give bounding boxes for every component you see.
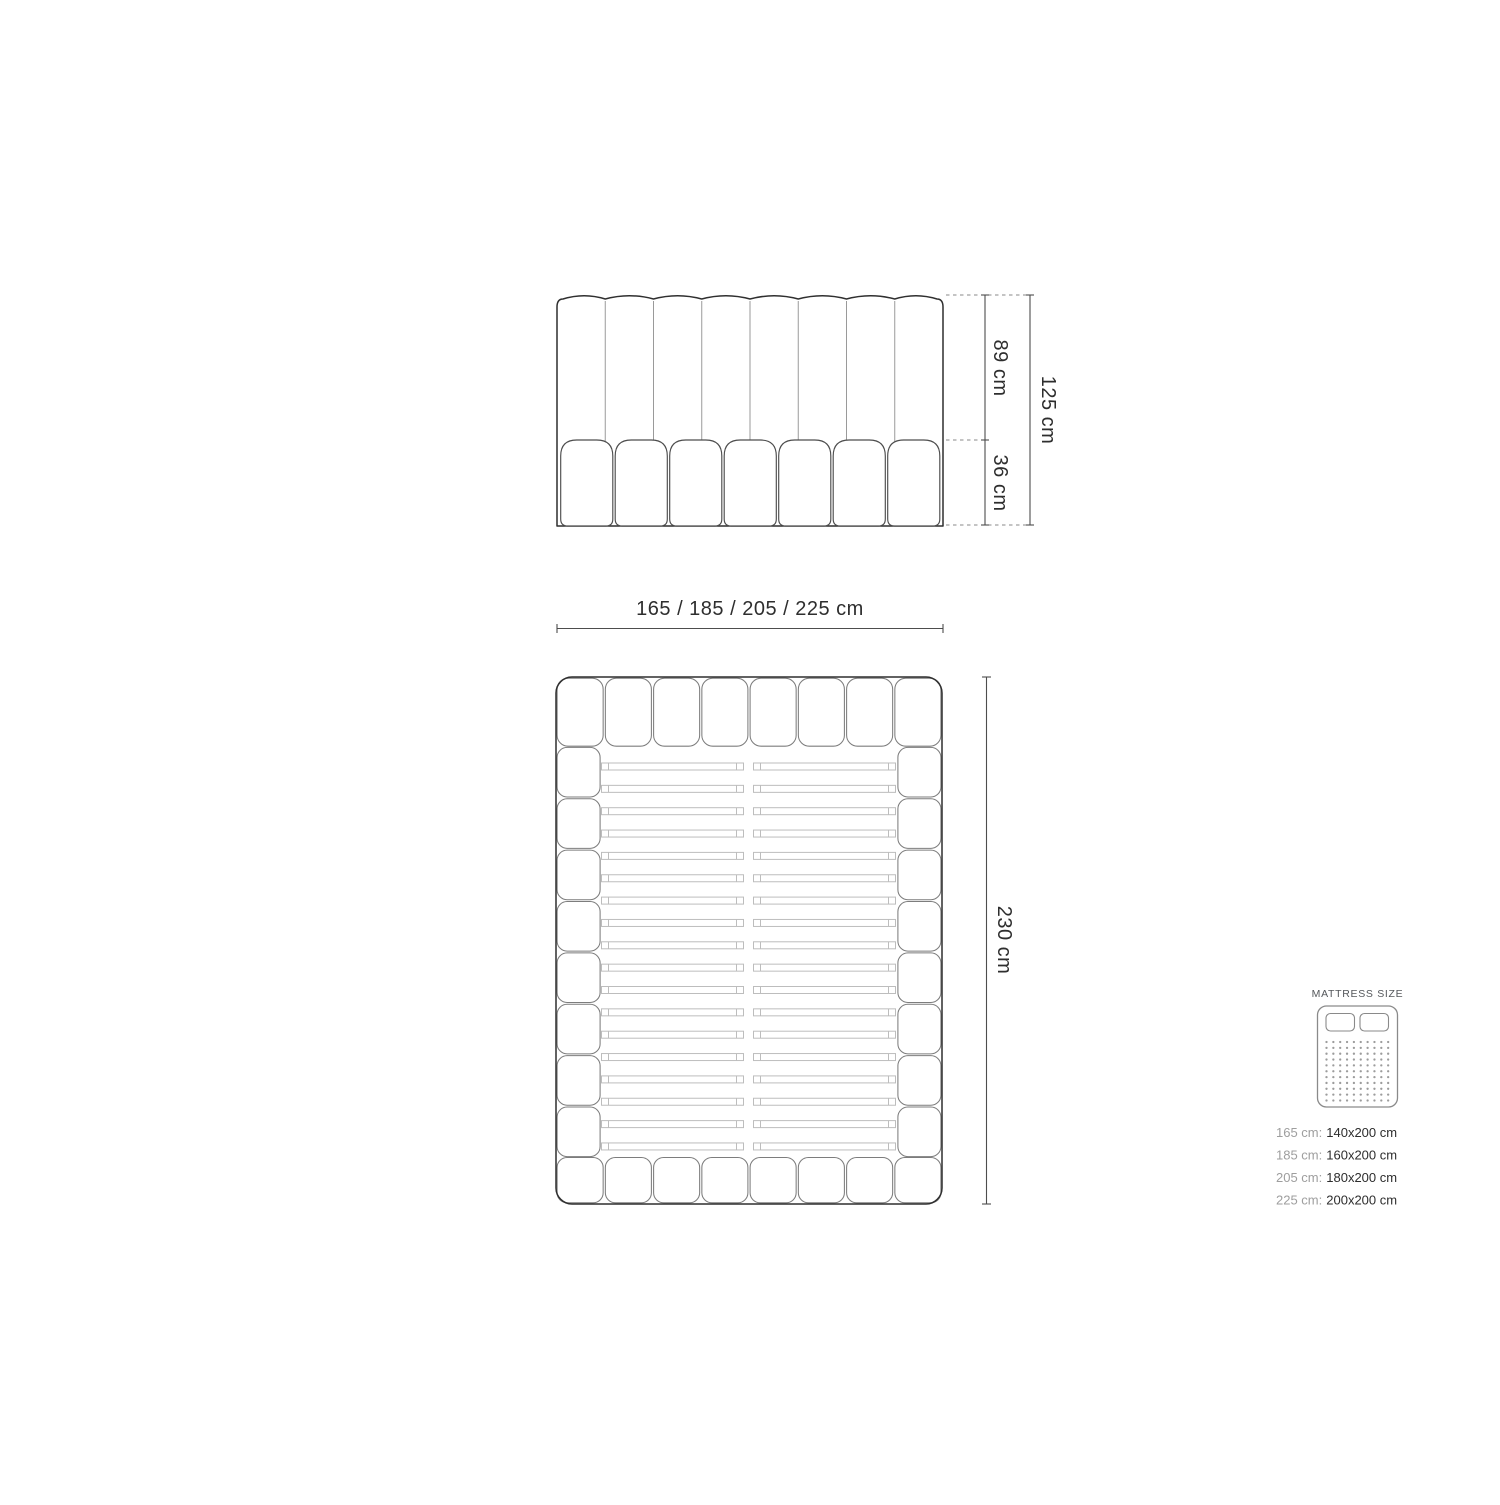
plan-headboard-pillow — [750, 678, 796, 746]
legend-rows: 165 cm:140x200 cm 185 cm:160x200 cm 205 … — [1276, 1125, 1397, 1208]
mattress-dot — [1339, 1070, 1341, 1072]
mattress-dot — [1325, 1064, 1327, 1066]
length-label: 230 cm — [993, 906, 1015, 975]
mattress-dot — [1346, 1041, 1348, 1043]
slat — [602, 808, 744, 815]
headboard-height-label: 89 cm — [989, 340, 1011, 397]
slat — [602, 1098, 744, 1105]
mattress-dot — [1373, 1047, 1375, 1049]
slat — [602, 785, 744, 792]
mattress-dot — [1387, 1099, 1389, 1101]
mattress-dot — [1380, 1053, 1382, 1055]
mattress-dot — [1332, 1099, 1334, 1101]
mattress-dot — [1380, 1064, 1382, 1066]
mattress-dot — [1325, 1099, 1327, 1101]
mattress-dot — [1346, 1058, 1348, 1060]
plan-footboard-pillow — [605, 1158, 651, 1203]
legend-row-mattress-value: 180x200 cm — [1326, 1170, 1397, 1185]
front-base-pillow — [724, 440, 776, 526]
mattress-dot — [1346, 1094, 1348, 1096]
mattress-dot — [1360, 1082, 1362, 1084]
legend-row-width-label: 165 cm: — [1276, 1125, 1322, 1140]
mattress-dot — [1325, 1082, 1327, 1084]
plan-headboard-pillow — [847, 678, 893, 746]
plan-left-rail-pillow — [557, 1004, 600, 1054]
mattress-dot — [1346, 1064, 1348, 1066]
mattress-dot — [1346, 1047, 1348, 1049]
mattress-dot — [1387, 1076, 1389, 1078]
plan-footboard-pillow — [847, 1158, 893, 1203]
mattress-dot — [1332, 1041, 1334, 1043]
mattress-dot — [1373, 1041, 1375, 1043]
mattress-dot — [1373, 1070, 1375, 1072]
width-dimension: 165 / 185 / 205 / 225 cm — [557, 598, 943, 633]
mattress-dot — [1373, 1099, 1375, 1101]
slat — [602, 852, 744, 859]
slat — [754, 1076, 896, 1083]
mattress-dot — [1332, 1070, 1334, 1072]
plan-footboard-pillow — [702, 1158, 748, 1203]
mattress-dot — [1380, 1088, 1382, 1090]
mattress-dot — [1353, 1053, 1355, 1055]
mattress-dot — [1380, 1076, 1382, 1078]
mattress-dot — [1360, 1064, 1362, 1066]
legend-row: 165 cm:140x200 cm — [1276, 1125, 1397, 1140]
legend-row-mattress-value: 200x200 cm — [1326, 1193, 1397, 1208]
mattress-dot — [1387, 1053, 1389, 1055]
slat — [754, 763, 896, 770]
pillow-right-icon — [1360, 1014, 1389, 1032]
slat — [602, 1143, 744, 1150]
mattress-dot — [1353, 1094, 1355, 1096]
slat — [754, 1143, 896, 1150]
legend-title: MATTRESS SIZE — [1312, 988, 1404, 1000]
slat — [754, 919, 896, 926]
legend-row-width-label: 185 cm: — [1276, 1148, 1322, 1163]
front-base-pillow — [561, 440, 613, 526]
slat — [754, 875, 896, 882]
mattress-dot — [1339, 1099, 1341, 1101]
mattress-dot — [1387, 1070, 1389, 1072]
mattress-dot — [1380, 1094, 1382, 1096]
plan-right-rail-pillow — [898, 1004, 941, 1054]
plan-headboard-pillow — [605, 678, 651, 746]
mattress-dot — [1346, 1099, 1348, 1101]
mattress-dot — [1346, 1082, 1348, 1084]
plan-left-rail-pillow — [557, 953, 600, 1003]
plan-footboard-pillow — [654, 1158, 700, 1203]
legend-row: 225 cm:200x200 cm — [1276, 1193, 1397, 1208]
mattress-dot — [1339, 1082, 1341, 1084]
mattress-dot — [1360, 1094, 1362, 1096]
slat — [754, 1098, 896, 1105]
slat — [602, 1009, 744, 1016]
mattress-dot — [1325, 1076, 1327, 1078]
mattress-dot — [1387, 1064, 1389, 1066]
mattress-dot — [1380, 1082, 1382, 1084]
mattress-dot — [1346, 1088, 1348, 1090]
mattress-dot — [1332, 1064, 1334, 1066]
mattress-dot — [1346, 1076, 1348, 1078]
slat — [602, 987, 744, 994]
mattress-dot — [1353, 1082, 1355, 1084]
slat — [602, 942, 744, 949]
plan-right-rail-pillow — [898, 1107, 941, 1157]
mattress-dot — [1360, 1076, 1362, 1078]
mattress-dot — [1339, 1058, 1341, 1060]
mattress-dot — [1360, 1088, 1362, 1090]
mattress-dot — [1387, 1088, 1389, 1090]
mattress-dot — [1332, 1058, 1334, 1060]
slat — [602, 897, 744, 904]
slat — [602, 919, 744, 926]
mattress-dot — [1387, 1058, 1389, 1060]
slat — [602, 964, 744, 971]
mattress-dot — [1353, 1041, 1355, 1043]
front-view-base-mattress — [561, 440, 940, 526]
mattress-dot — [1366, 1094, 1368, 1096]
mattress-dot — [1387, 1082, 1389, 1084]
front-base-pillow — [833, 440, 885, 526]
mattress-dot — [1332, 1076, 1334, 1078]
mattress-dot — [1366, 1088, 1368, 1090]
diagram-canvas: 89 cm 36 cm 125 cm 165 / 185 / 205 / 225… — [0, 0, 1500, 1505]
mattress-dot — [1373, 1094, 1375, 1096]
plan-headboard-pillow — [654, 678, 700, 746]
slat — [754, 942, 896, 949]
legend-row-width-label: 225 cm: — [1276, 1193, 1322, 1208]
slat — [602, 763, 744, 770]
mattress-dot — [1325, 1041, 1327, 1043]
slat — [602, 1031, 744, 1038]
mattress-dot — [1339, 1047, 1341, 1049]
bed-dimension-diagram: 89 cm 36 cm 125 cm 165 / 185 / 205 / 225… — [0, 0, 1500, 1500]
mattress-size-legend: MATTRESS SIZE 165 cm:140x200 cm 185 cm:1… — [1276, 988, 1403, 1208]
slat — [754, 1054, 896, 1061]
front-base-pillow — [888, 440, 940, 526]
mattress-dot — [1339, 1053, 1341, 1055]
mattress-dot — [1380, 1058, 1382, 1060]
mattress-dot — [1373, 1082, 1375, 1084]
slat — [754, 852, 896, 859]
slat — [754, 1009, 896, 1016]
slat — [602, 1076, 744, 1083]
length-dimension: 230 cm — [982, 677, 1015, 1204]
mattress-dot — [1325, 1070, 1327, 1072]
mattress-dot — [1360, 1099, 1362, 1101]
slat — [754, 964, 896, 971]
plan-right-rail-pillow — [898, 799, 941, 849]
plan-right-rail-pillow — [898, 1056, 941, 1106]
legend-row: 205 cm:180x200 cm — [1276, 1170, 1397, 1185]
mattress-icon — [1318, 1006, 1398, 1107]
mattress-dot — [1325, 1058, 1327, 1060]
slat — [602, 1121, 744, 1128]
plan-right-rail-pillow — [898, 747, 941, 797]
plan-left-rail-pillow — [557, 902, 600, 952]
mattress-dot — [1360, 1053, 1362, 1055]
mattress-dot — [1353, 1047, 1355, 1049]
mattress-dot — [1380, 1070, 1382, 1072]
mattress-dot — [1366, 1082, 1368, 1084]
total-height-label: 125 cm — [1037, 376, 1059, 445]
mattress-dot — [1366, 1053, 1368, 1055]
plan-view-slats — [602, 763, 896, 1150]
plan-headboard-pillow — [557, 678, 603, 746]
mattress-dot — [1346, 1070, 1348, 1072]
slat — [602, 875, 744, 882]
slat — [754, 808, 896, 815]
mattress-dot — [1325, 1088, 1327, 1090]
mattress-dot — [1339, 1041, 1341, 1043]
legend-row-width-label: 205 cm: — [1276, 1170, 1322, 1185]
mattress-dot — [1373, 1053, 1375, 1055]
slat — [754, 897, 896, 904]
mattress-dot — [1366, 1070, 1368, 1072]
plan-left-rail-pillow — [557, 1107, 600, 1157]
mattress-dot — [1380, 1041, 1382, 1043]
plan-headboard-pillow — [798, 678, 844, 746]
front-view-dimensions: 89 cm 36 cm 125 cm — [946, 295, 1059, 525]
mattress-dot — [1366, 1076, 1368, 1078]
mattress-dot — [1373, 1064, 1375, 1066]
legend-row: 185 cm:160x200 cm — [1276, 1148, 1397, 1163]
mattress-dot — [1380, 1047, 1382, 1049]
mattress-dot — [1366, 1058, 1368, 1060]
mattress-dot — [1353, 1076, 1355, 1078]
plan-right-rail-pillow — [898, 902, 941, 952]
mattress-dot — [1360, 1058, 1362, 1060]
slat — [754, 1031, 896, 1038]
mattress-dot — [1332, 1094, 1334, 1096]
pillow-left-icon — [1326, 1014, 1355, 1032]
mattress-dot — [1366, 1064, 1368, 1066]
plan-right-rail-pillow — [898, 953, 941, 1003]
mattress-dot — [1360, 1047, 1362, 1049]
mattress-dot — [1373, 1058, 1375, 1060]
plan-footboard-pillow — [895, 1158, 941, 1203]
plan-headboard-pillow — [895, 678, 941, 746]
mattress-dot — [1366, 1041, 1368, 1043]
mattress-dot — [1380, 1099, 1382, 1101]
legend-row-mattress-value: 140x200 cm — [1326, 1125, 1397, 1140]
legend-row-mattress-value: 160x200 cm — [1326, 1148, 1397, 1163]
plan-footboard-pillow — [750, 1158, 796, 1203]
plan-left-rail-pillow — [557, 747, 600, 797]
mattress-dot — [1387, 1041, 1389, 1043]
mattress-dot — [1360, 1070, 1362, 1072]
mattress-dot — [1332, 1082, 1334, 1084]
base-height-label: 36 cm — [989, 455, 1011, 512]
slat — [754, 987, 896, 994]
mattress-dot — [1366, 1099, 1368, 1101]
mattress-dot — [1332, 1088, 1334, 1090]
mattress-dot — [1339, 1088, 1341, 1090]
mattress-dot — [1353, 1058, 1355, 1060]
slat — [754, 785, 896, 792]
mattress-dot — [1353, 1088, 1355, 1090]
mattress-dot — [1339, 1094, 1341, 1096]
width-options-label: 165 / 185 / 205 / 225 cm — [636, 598, 864, 620]
mattress-dot — [1366, 1047, 1368, 1049]
mattress-dot — [1346, 1053, 1348, 1055]
mattress-dot — [1332, 1047, 1334, 1049]
front-base-pillow — [779, 440, 831, 526]
mattress-dot — [1325, 1053, 1327, 1055]
plan-left-rail-pillow — [557, 850, 600, 900]
slat — [754, 1121, 896, 1128]
mattress-dot — [1353, 1064, 1355, 1066]
mattress-dot — [1339, 1064, 1341, 1066]
mattress-dot — [1325, 1094, 1327, 1096]
slat — [602, 830, 744, 837]
mattress-dot — [1387, 1047, 1389, 1049]
mattress-dot — [1373, 1088, 1375, 1090]
mattress-dot — [1373, 1076, 1375, 1078]
mattress-dot — [1353, 1070, 1355, 1072]
mattress-dot — [1325, 1047, 1327, 1049]
mattress-dot — [1387, 1094, 1389, 1096]
mattress-dot — [1353, 1099, 1355, 1101]
plan-footboard-pillow — [798, 1158, 844, 1203]
plan-left-rail-pillow — [557, 799, 600, 849]
plan-headboard-pillow — [702, 678, 748, 746]
plan-right-rail-pillow — [898, 850, 941, 900]
front-base-pillow — [615, 440, 667, 526]
mattress-dot — [1339, 1076, 1341, 1078]
mattress-dot — [1360, 1041, 1362, 1043]
slat — [754, 830, 896, 837]
mattress-dot — [1332, 1053, 1334, 1055]
front-base-pillow — [670, 440, 722, 526]
plan-left-rail-pillow — [557, 1056, 600, 1106]
plan-footboard-pillow — [557, 1158, 603, 1203]
slat — [602, 1054, 744, 1061]
